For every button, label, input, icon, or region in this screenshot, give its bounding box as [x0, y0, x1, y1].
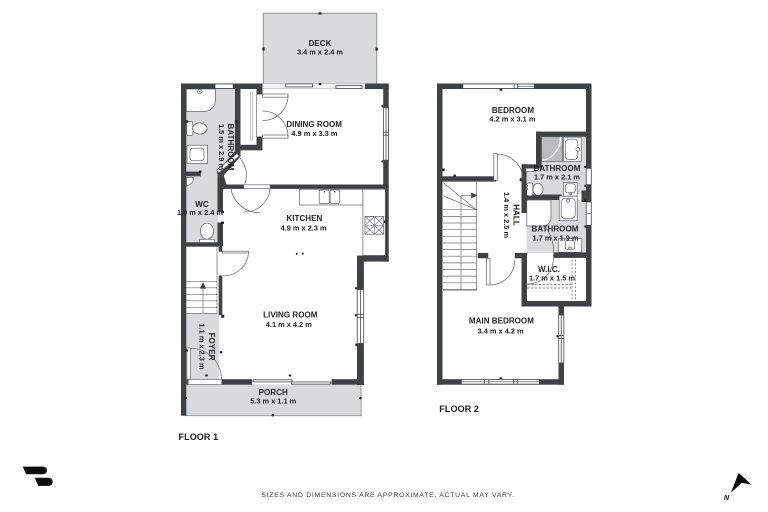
svg-text:FLOOR 2: FLOOR 2	[439, 404, 479, 414]
svg-text:FOYER: FOYER	[207, 333, 216, 361]
svg-text:MAIN BEDROOM: MAIN BEDROOM	[469, 316, 534, 325]
svg-text:DINING ROOM: DINING ROOM	[286, 120, 342, 129]
svg-text:5.3 m x 1.1 m: 5.3 m x 1.1 m	[250, 396, 296, 405]
svg-text:HALL: HALL	[512, 204, 521, 226]
svg-text:KITCHEN: KITCHEN	[286, 214, 322, 223]
svg-text:1.0 m x 2.4 m: 1.0 m x 2.4 m	[177, 208, 223, 217]
svg-text:4.1 m x 4.2 m: 4.1 m x 4.2 m	[266, 320, 312, 329]
svg-text:1.7 m x 1.9 m: 1.7 m x 1.9 m	[532, 233, 578, 242]
svg-text:LIVING ROOM: LIVING ROOM	[263, 311, 318, 320]
svg-text:FLOOR 1: FLOOR 1	[179, 432, 219, 442]
svg-text:1.5 m x 2.9 m: 1.5 m x 2.9 m	[217, 124, 226, 170]
svg-text:SIZES AND DIMENSIONS ARE APPRO: SIZES AND DIMENSIONS ARE APPROXIMATE, AC…	[261, 492, 514, 499]
svg-text:1.1 m x 2.3 m: 1.1 m x 2.3 m	[198, 323, 207, 369]
svg-text:1.7 m x 2.1 m: 1.7 m x 2.1 m	[534, 173, 580, 182]
svg-text:4.2 m x 3.1 m: 4.2 m x 3.1 m	[489, 115, 535, 124]
svg-text:3.4 m x 4.2 m: 3.4 m x 4.2 m	[478, 326, 524, 335]
svg-text:1.4 m x 2.5 m: 1.4 m x 2.5 m	[502, 192, 511, 238]
svg-text:BATHROOM: BATHROOM	[532, 225, 579, 234]
svg-text:4.9 m x 2.3 m: 4.9 m x 2.3 m	[281, 223, 327, 232]
svg-text:1.7 m x 1.5 m: 1.7 m x 1.5 m	[529, 273, 575, 282]
svg-text:4.9 m x 3.3 m: 4.9 m x 3.3 m	[291, 129, 337, 138]
svg-text:3.4 m x 2.4 m: 3.4 m x 2.4 m	[297, 47, 343, 56]
svg-text:BATHROOM: BATHROOM	[226, 124, 235, 171]
